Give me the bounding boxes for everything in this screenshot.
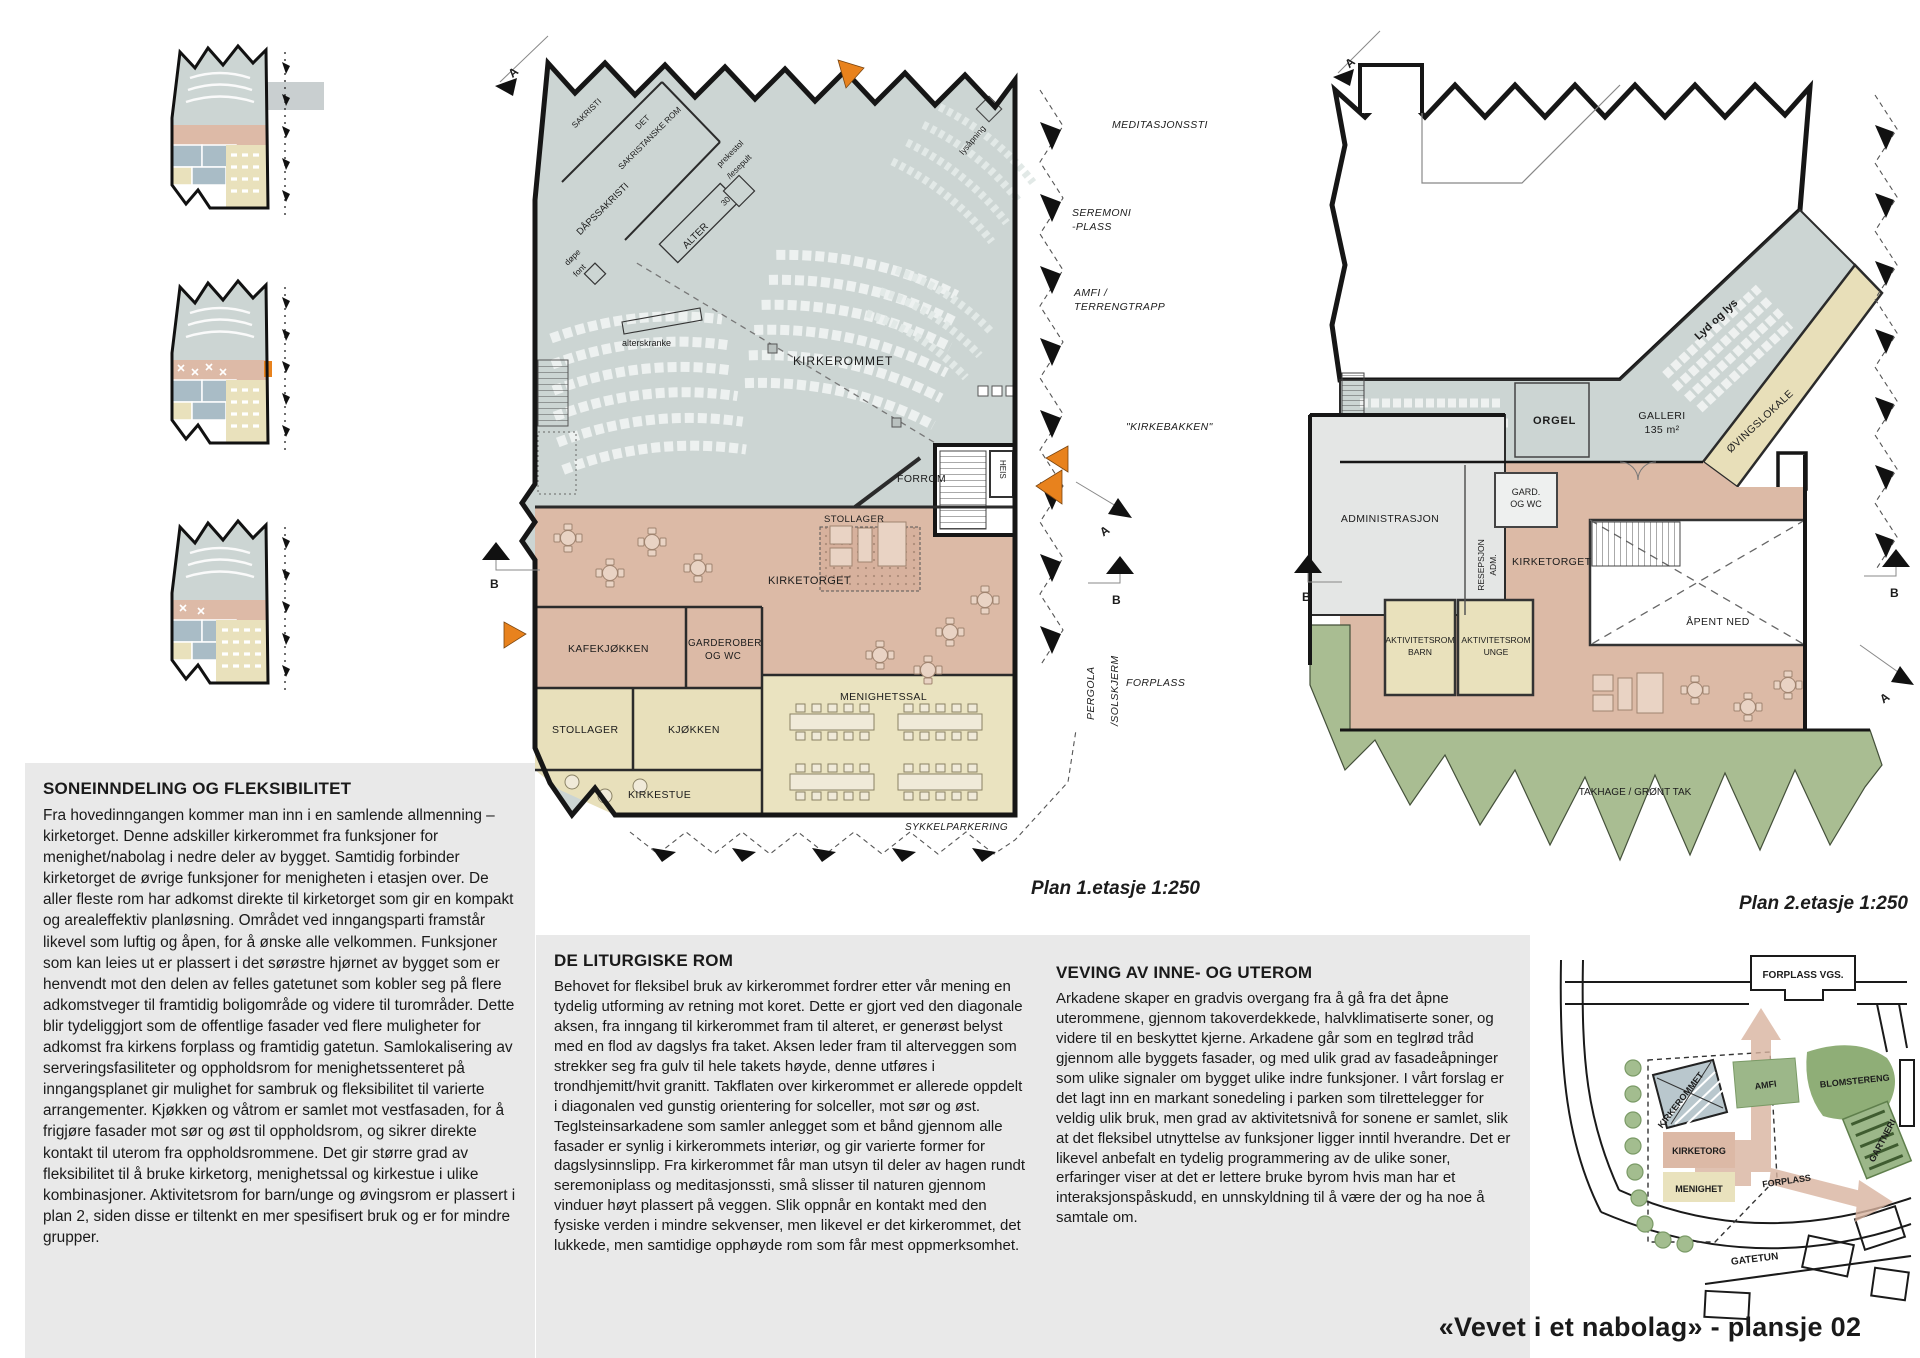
section-label-b: B (1302, 590, 1311, 604)
room-label-gard-2: OG WC (1510, 499, 1542, 509)
section-marker-b-right: B (1088, 556, 1134, 607)
site-diagram-3 (150, 505, 325, 710)
site-diagram-1 (150, 30, 325, 235)
roof-notch (1360, 65, 1422, 113)
site-label-meditasjonssti: MEDITASJONSSTI (1112, 119, 1208, 131)
room-label-galleri-2: 135 m² (1644, 424, 1679, 436)
room-label-menighetssal: MENIGHETSSAL (840, 691, 927, 703)
room-label-kafekjokken: KAFEKJØKKEN (568, 643, 649, 655)
room-label-orgel: ORGEL (1533, 415, 1576, 427)
section-label-a: A (505, 64, 521, 81)
section-label-b: B (490, 577, 499, 591)
plan1-caption: Plan 1.etasje 1:250 (1031, 878, 1200, 899)
axis-node (768, 344, 777, 353)
diagram1-arrow-band (266, 82, 324, 110)
p2-marker-a-right: A (1860, 645, 1914, 706)
section-label-a: A (1342, 54, 1358, 71)
liturgiske-body: Behovet for fleksibel bruk av kirkeromme… (554, 977, 1026, 1256)
site-label-pergola-2: /SOLSKJERM (1109, 655, 1121, 727)
room-label-kirkestue: KIRKESTUE (628, 789, 691, 801)
diagram2-arcade (282, 287, 290, 450)
diagram3-arcade (282, 527, 290, 690)
label-menighet: MENIGHET (1675, 1184, 1723, 1194)
room-label-kirketorget2: KIRKETORGET (1512, 556, 1592, 568)
site-label-amfi-1: AMFI / (1073, 287, 1108, 299)
room-label-kirketorget: KIRKETORGET (768, 575, 851, 587)
room-label-administrasjon: ADMINISTRASJON (1341, 513, 1439, 525)
panel-middle: DE LITURGISKE ROM Behovet for fleksibel … (536, 935, 1530, 1358)
storage-squares (978, 386, 1016, 396)
room-label-akt-unge-2: UNGE (1484, 647, 1509, 657)
siteplan-drawing: FORPLASS VGS. KIRKEROMMET AMFI BLOMSTERE… (1555, 940, 1915, 1330)
core-stair (940, 451, 986, 529)
room-label-kjokken: KJØKKEN (668, 724, 720, 736)
column-veving: VEVING AV INNE- OG UTEROM Arkadene skape… (1056, 963, 1512, 1228)
room-label-apent-ned: ÅPENT NED (1686, 615, 1750, 628)
soneinndeling-body: Fra hovedinngangen kommer man inn i en s… (43, 805, 517, 1248)
site-label-seremoni-1: SEREMONI (1072, 207, 1131, 219)
plan2-caption: Plan 2.etasje 1:250 (1739, 893, 1908, 914)
room-label-kirkerommet: KIRKEROMMET (793, 354, 893, 368)
room-label-galleri-1: GALLERI (1638, 410, 1685, 422)
axis-node (892, 418, 901, 427)
room-label-resepsjon-2: ADM. (1488, 554, 1498, 575)
board-title: «Vevet i et nabolag» - plansje 02 (1400, 1312, 1900, 1343)
void-stair (1592, 522, 1680, 566)
plan2-arcade-east (1875, 95, 1897, 571)
plan2-drawing: A B B A Lyd og lys ORGEL GALLERI 135 m² … (1290, 25, 1920, 925)
section-marker-a-top: A (495, 36, 548, 96)
soneinndeling-title: SONEINNDELING OG FLEKSIBILITET (43, 779, 517, 799)
ovingslokale-store (1778, 453, 1806, 489)
room-label-akt-barn-1: AKTIVITETSROM (1385, 635, 1454, 645)
room-label-stollager-oppe: STOLLAGER (824, 514, 884, 525)
column-liturgiske: DE LITURGISKE ROM Behovet for fleksibel … (554, 951, 1026, 1256)
room-label-resepsjon-1: RESEPSJON (1476, 539, 1486, 591)
site-label-sykkelparkering: SYKKELPARKERING (905, 822, 1008, 833)
site-label-pergola-1: PERGOLA (1085, 666, 1097, 720)
competition-board: A B B A SAKRISTI DET SAKRISTANSKE ROM DÅ… (0, 0, 1920, 1358)
section-label-a: A (1877, 690, 1892, 707)
site-label-kirkebakken: "KIRKEBAKKEN" (1126, 421, 1214, 433)
room-label-garderober-1: GARDEROBER (688, 638, 762, 649)
room-label-heis: HEIS (998, 460, 1007, 479)
room-label-gard-1: GARD. (1512, 487, 1541, 497)
veving-body: Arkadene skaper en gradvis overgang fra … (1056, 989, 1512, 1228)
p2-marker-b-right: B (1864, 549, 1910, 600)
site-label-forplass: FORPLASS (1126, 677, 1185, 689)
room-label-alterskranke: alterskranke (622, 338, 671, 348)
label-kirketorg: KIRKETORG (1672, 1146, 1726, 1156)
section-label-b: B (1112, 593, 1121, 607)
site-label-seremoni-2: -PLASS (1072, 221, 1112, 233)
label-forplass-vgs: FORPLASS VGS. (1762, 970, 1843, 981)
section-marker-a-right: A (1076, 482, 1132, 539)
diagram1-arcade (282, 52, 290, 215)
section-label-a: A (1097, 523, 1112, 540)
room-label-garderober-2: OG WC (705, 651, 741, 662)
section-label-b: B (1890, 586, 1899, 600)
label-gatetun: GATETUN (1730, 1251, 1779, 1268)
room-label-akt-barn-2: BARN (1408, 647, 1432, 657)
liturgiske-title: DE LITURGISKE ROM (554, 951, 1026, 971)
panel-soneinndeling: SONEINNDELING OG FLEKSIBILITET Fra hoved… (25, 763, 535, 1358)
room-label-forrom: FORROM (897, 473, 946, 485)
hall-stair (538, 360, 568, 426)
site-label-amfi-2: TERRENGTRAPP (1074, 301, 1165, 313)
room-label-takhage: TAKHAGE / GRØNT TAK (1579, 787, 1692, 798)
room-label-akt-unge-1: AKTIVITETSROM (1461, 635, 1530, 645)
veving-title: VEVING AV INNE- OG UTEROM (1056, 963, 1512, 983)
room-label-stollager: STOLLAGER (552, 724, 618, 736)
site-diagram-2 (150, 265, 325, 470)
arcade-east (1040, 90, 1063, 666)
